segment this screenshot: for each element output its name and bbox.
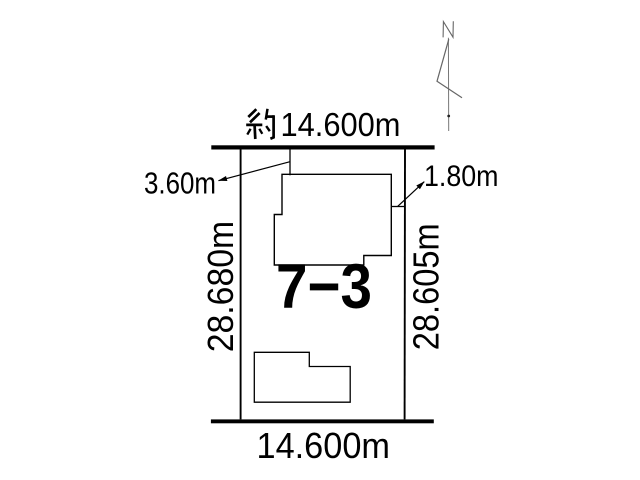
svg-text:3.60m: 3.60m [144, 166, 216, 200]
svg-text:7−3: 7−3 [276, 252, 372, 322]
svg-text:28.680m: 28.680m [200, 221, 241, 353]
svg-text:28.605m: 28.605m [405, 223, 446, 350]
svg-text:14.600m: 14.600m [257, 425, 391, 466]
svg-text:14.600m: 14.600m [281, 106, 401, 143]
svg-text:1.80m: 1.80m [424, 160, 499, 193]
